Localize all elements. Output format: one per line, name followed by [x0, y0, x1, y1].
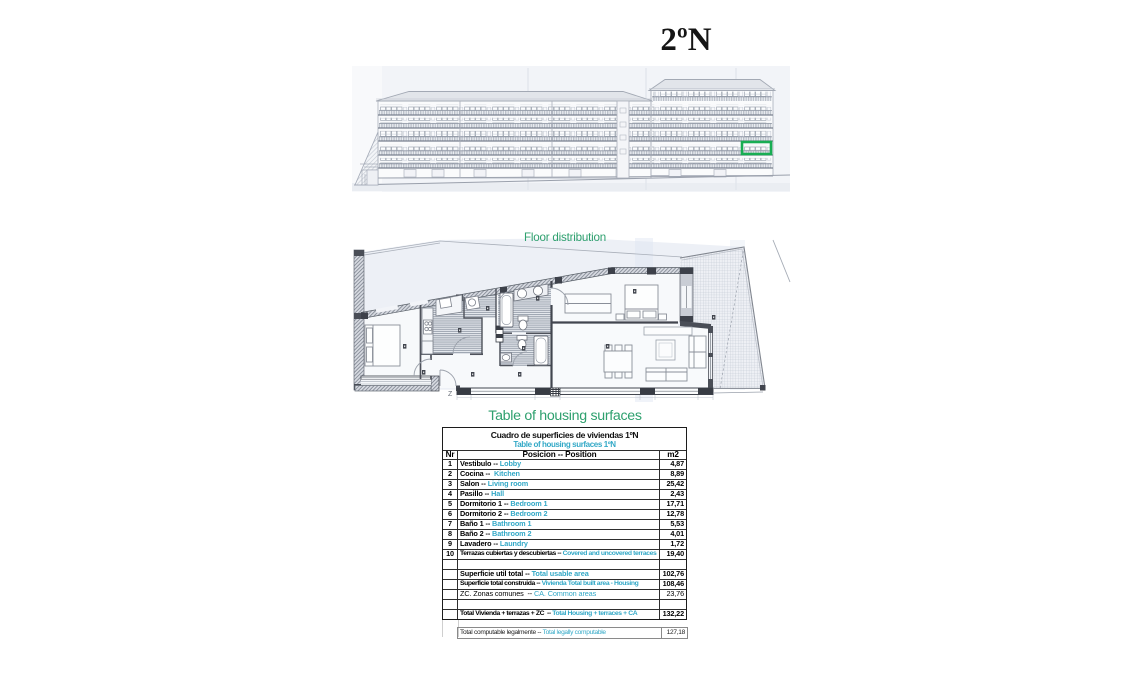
- svg-text:Z: Z: [448, 391, 453, 398]
